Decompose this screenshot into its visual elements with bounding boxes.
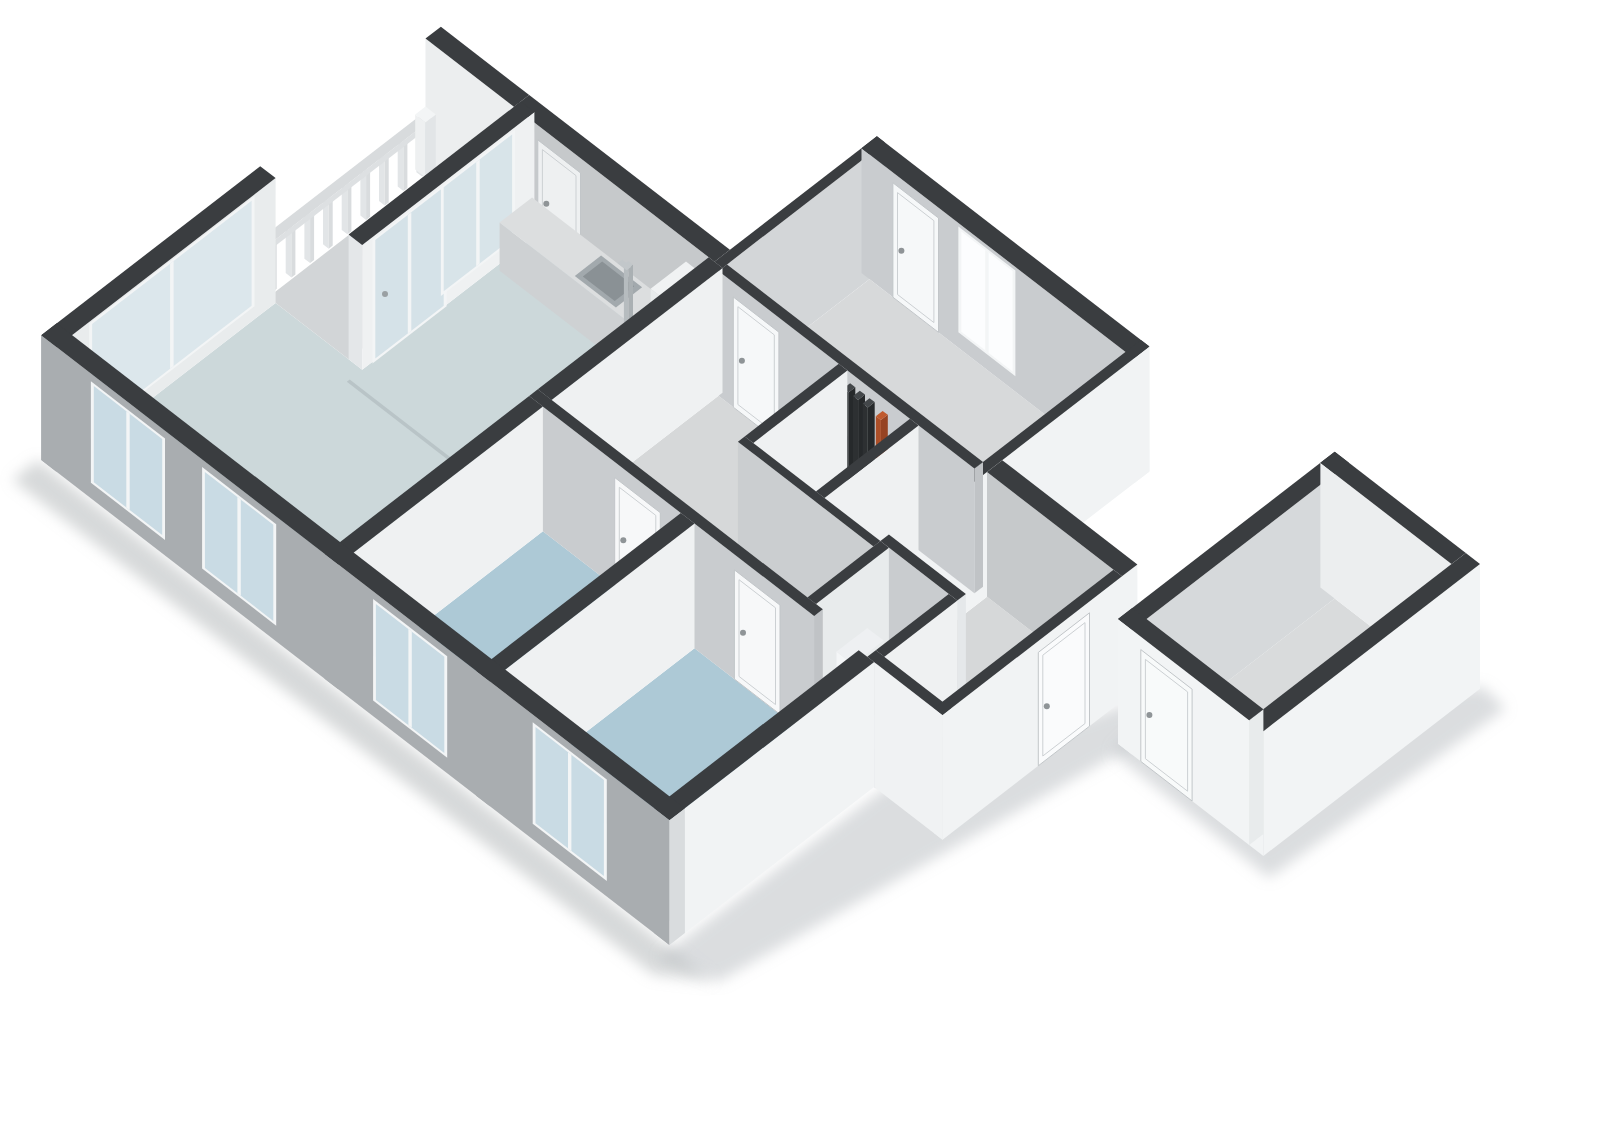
floorplan-page: 3D isometric floor plan render xyxy=(0,0,1600,1132)
scene-root xyxy=(12,27,1505,982)
handle-balcony-door xyxy=(382,291,388,297)
floorplan-3d-render: 3D isometric floor plan render xyxy=(0,0,1600,1132)
railing-corner-post xyxy=(415,107,436,178)
